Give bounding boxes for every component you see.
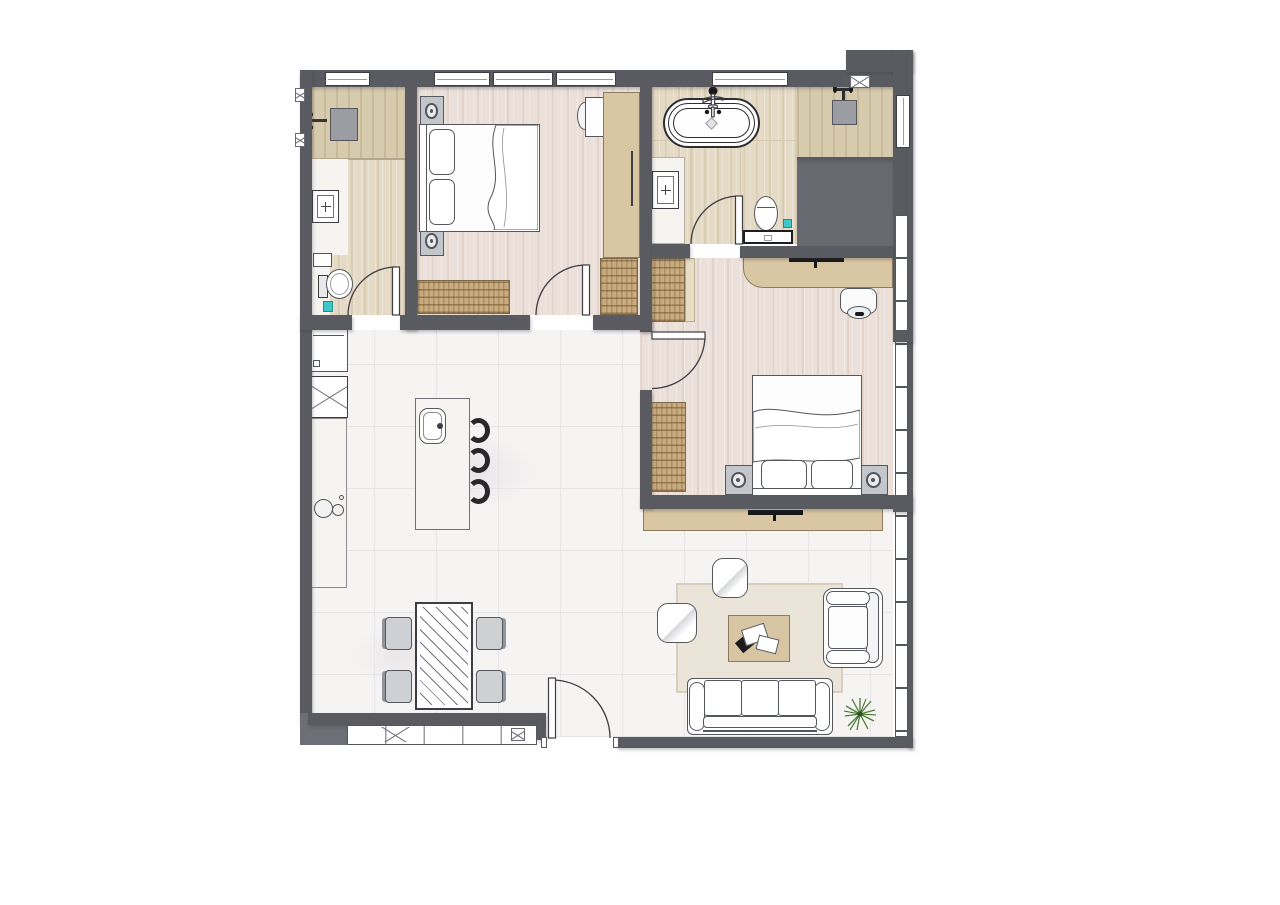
desk-chair-foot (855, 312, 864, 316)
speaker-cone-icon (425, 233, 438, 249)
right-wall-outer-line (908, 50, 913, 748)
wall-bedroom1-masterbath (640, 87, 652, 332)
dining-chair-2 (385, 670, 412, 703)
window-mullion (559, 79, 613, 80)
vent-icon-left-1 (295, 88, 305, 102)
bar-stool-2 (467, 448, 490, 473)
speaker-nightstand-4 (860, 465, 888, 495)
bottom-wall-right (617, 737, 913, 748)
masterbath-bottom-wall-seg-2 (740, 246, 893, 258)
dining-table (415, 602, 473, 710)
speaker-nightstand-1 (420, 96, 444, 126)
shower-arm-icon-2 (309, 110, 333, 132)
window-mullion (715, 79, 785, 80)
master-wardrobe-2 (650, 402, 686, 492)
bed-1-pillow-1 (429, 129, 455, 175)
toilet-nook-shelf (743, 230, 793, 244)
wall-living-masterbedroom (640, 390, 652, 508)
island-sink (419, 408, 446, 444)
balcony-x-mark (511, 728, 525, 741)
wall-bath2-bedroom1 (405, 87, 417, 330)
arm-stem (842, 90, 845, 100)
master-wardrobe-side (685, 258, 695, 322)
pouf-1 (712, 558, 748, 598)
dining-table-glass (420, 607, 468, 705)
cooktop-burner-small (332, 504, 344, 516)
armchair-arm-bottom (826, 650, 870, 664)
window-master-bath (712, 72, 788, 86)
sofa-cushion-2 (741, 680, 779, 716)
bottom-wall-left (308, 713, 542, 725)
tv-stand (773, 515, 776, 521)
balcony-x-brace (350, 727, 440, 742)
window-shaft-right (896, 95, 910, 148)
door-master-bedroom (645, 328, 711, 396)
master-bed (752, 375, 862, 497)
window-band-right (895, 215, 908, 737)
speaker-cone-icon (425, 103, 438, 119)
balcony-glazing (347, 725, 537, 745)
dining-chair-4 (476, 670, 503, 703)
speaker-cone-icon (731, 472, 746, 488)
bedroom-1-dresser (417, 280, 510, 314)
south-wall-seg-3 (593, 315, 652, 330)
bathroom-2-shelf (313, 253, 332, 267)
window-mullion (496, 79, 550, 80)
fridge (309, 328, 348, 372)
desk-tv-stand (814, 262, 817, 268)
window-bathroom-2 (325, 72, 370, 86)
bedroom-1-dresser-right (600, 258, 638, 315)
master-bed-pillow-2 (811, 460, 853, 490)
master-toilet (754, 196, 778, 231)
right-wall-stub-1 (893, 330, 913, 342)
cooktop-knob (339, 495, 344, 500)
sofa (687, 678, 833, 735)
bedroom-1-desk (585, 97, 604, 137)
island-faucet (437, 423, 443, 429)
door-bedroom-1 (528, 258, 594, 332)
wardrobe-handle (631, 151, 633, 206)
drain-cross-icon (661, 185, 671, 195)
dining-chair-1 (385, 617, 412, 650)
toilet-seat-line (757, 207, 775, 208)
bedroom-1-wardrobe (603, 92, 640, 258)
bathroom-2-sink (312, 190, 339, 223)
speaker-nightstand-3 (725, 465, 753, 495)
entrance-jamb-left (541, 737, 547, 748)
oven-appliance (311, 376, 348, 418)
door-master-bath (685, 190, 747, 260)
shower-head-2 (330, 108, 358, 141)
kitchen-island (415, 398, 470, 530)
vent-icon-top (850, 75, 870, 88)
window-mullion (437, 79, 487, 80)
bar-stool-3 (467, 479, 490, 504)
master-sink (652, 171, 679, 209)
master-bed-pillow-1 (761, 460, 807, 490)
drain-cross-icon (321, 202, 331, 212)
armchair (823, 588, 883, 668)
entrance-jamb-right (613, 737, 619, 748)
coffee-table (728, 615, 790, 662)
master-bath-bin (783, 219, 792, 228)
master-wardrobe-1 (648, 258, 685, 322)
tv-console (643, 508, 883, 531)
south-wall-seg-2 (400, 315, 530, 330)
window-bedroom-1c (556, 72, 616, 86)
door-entrance (543, 674, 619, 742)
floor-plan-page (0, 0, 1280, 905)
vent-icon-left-2 (295, 133, 305, 147)
sofa-cushion-3 (778, 680, 816, 716)
fridge-handle (313, 360, 320, 367)
sofa-cushion-1 (704, 680, 742, 716)
masterbedroom-bottom-wall (640, 495, 893, 509)
door-bathroom-2 (343, 260, 405, 334)
shaft-void (797, 160, 893, 248)
bed-1-pillow-2 (429, 179, 455, 225)
book-white-2 (755, 635, 779, 655)
bathroom-2-bin (323, 301, 333, 312)
bar-stool-1 (467, 418, 490, 443)
cooktop-burner-large (314, 499, 333, 518)
window-bedroom-1a (434, 72, 490, 86)
tub-faucet-icon (699, 86, 725, 118)
window-bedroom-1b (493, 72, 553, 86)
fridge-door-line (313, 335, 344, 336)
window-mullion (903, 98, 904, 145)
left-wall (300, 70, 312, 725)
plant (843, 696, 877, 732)
master-shower-head (832, 100, 857, 125)
right-wall-stub-2 (893, 495, 913, 512)
dining-chair-3 (476, 617, 503, 650)
armchair-seat (828, 606, 868, 649)
window-mullion (328, 79, 367, 80)
bed-1 (419, 124, 540, 232)
shelf-detail (764, 235, 772, 241)
apartment-floor-plan (295, 50, 915, 750)
sofa-back (703, 716, 817, 728)
pouf-2 (657, 603, 697, 643)
speaker-cone-icon (866, 472, 881, 488)
sofa-base-line (703, 730, 817, 732)
kitchen-counter (309, 418, 347, 588)
armchair-arm-top (826, 591, 870, 605)
bed-1-headboard (420, 125, 427, 231)
shower-glass-line (797, 157, 893, 160)
